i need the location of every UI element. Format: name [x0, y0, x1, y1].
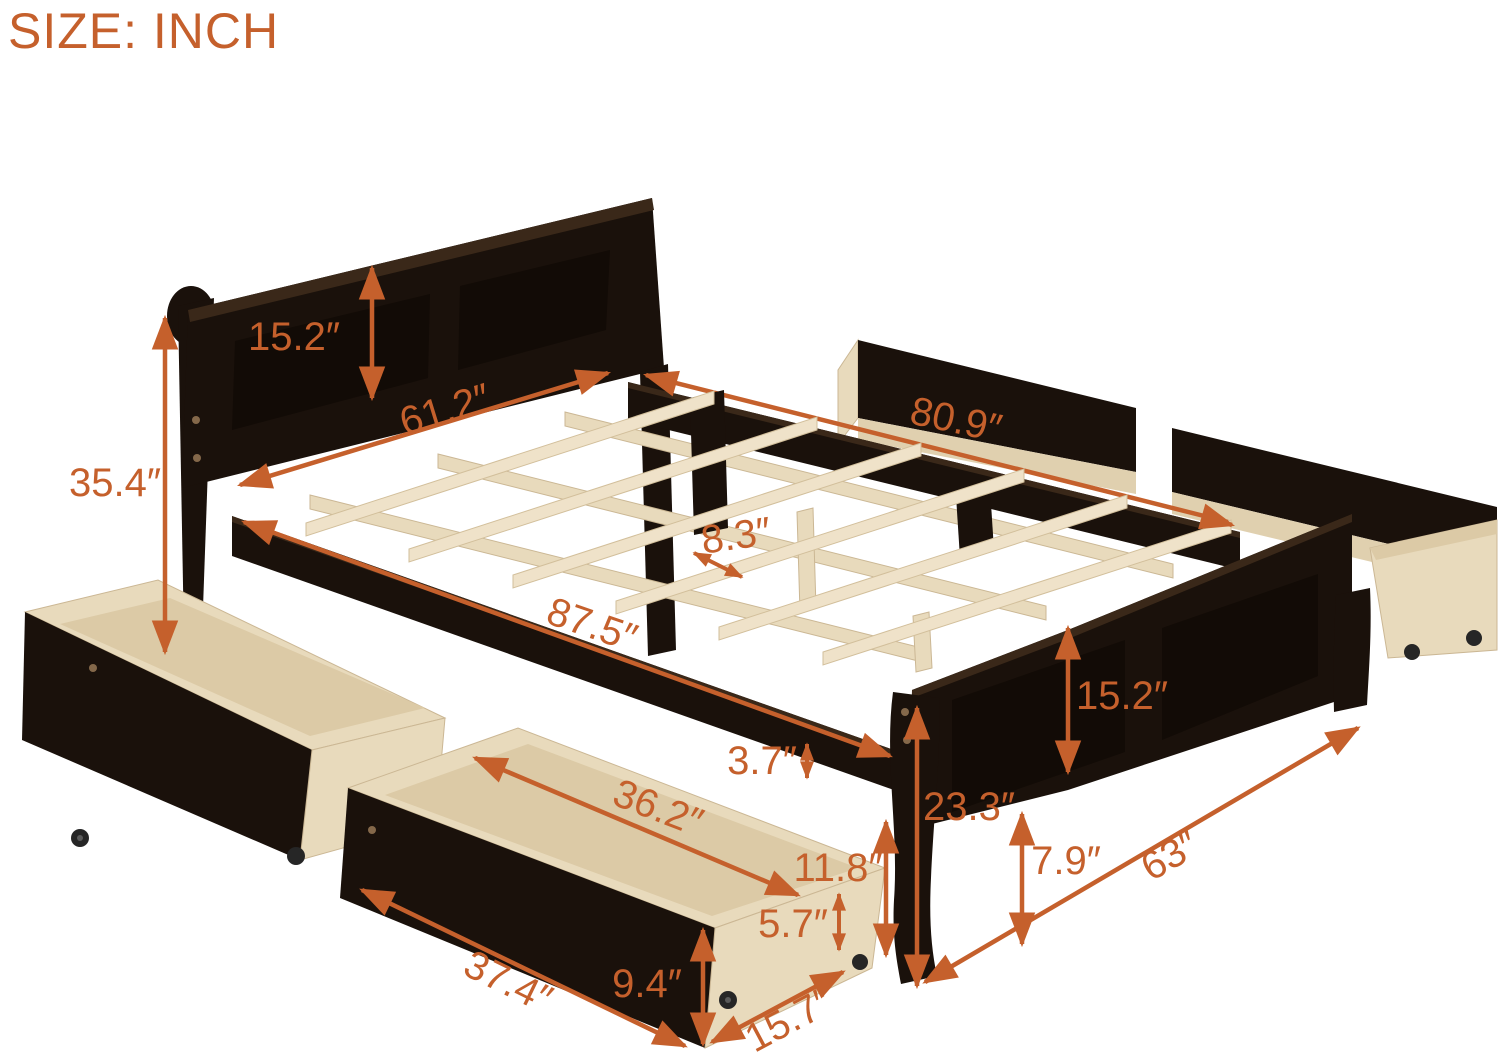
product-dimension-diagram: 15.2″ 61.2″ 35.4″ 80.9″ 8.3″ 87.5″ 15.2″… — [0, 0, 1500, 1061]
bolt — [89, 664, 97, 672]
caster-wheel — [1404, 644, 1420, 660]
dim-label-drawer-front-height: 9.4″ — [612, 962, 682, 1006]
dim-label-footboard-width: 63″ — [1134, 822, 1207, 889]
bed-dimension-illustration: 15.2″ 61.2″ 35.4″ 80.9″ 8.3″ 87.5″ 15.2″… — [0, 0, 1500, 1061]
bolt — [193, 454, 201, 462]
bolt — [903, 736, 911, 744]
dim-label-under-bed-clearance: 7.9″ — [1031, 839, 1101, 883]
dim-label-drawer-total-height: 11.8″ — [793, 846, 882, 890]
caster-hub — [725, 997, 731, 1003]
caster-hub — [77, 835, 83, 841]
footboard-near-leg — [890, 692, 939, 984]
dim-label-headboard-panel-height: 15.2″ — [248, 315, 340, 359]
footboard — [890, 514, 1371, 984]
dim-label-side-rail-thickness: 3.7″ — [727, 739, 797, 783]
dim-label-headboard-height: 35.4″ — [69, 461, 161, 505]
dim-label-footboard-panel-height: 15.2″ — [1076, 674, 1168, 718]
dim-label-footboard-height: 23.3″ — [923, 785, 1015, 829]
caster-wheel — [1466, 630, 1482, 646]
bolt — [192, 416, 200, 424]
caster-wheel — [852, 954, 868, 970]
footboard-far-leg — [1334, 588, 1371, 712]
bolt — [368, 826, 376, 834]
bolt — [901, 708, 909, 716]
caster-wheel — [287, 847, 305, 865]
dim-label-drawer-side-height: 5.7″ — [758, 902, 828, 946]
size-unit-title: SIZE: INCH — [8, 2, 279, 60]
